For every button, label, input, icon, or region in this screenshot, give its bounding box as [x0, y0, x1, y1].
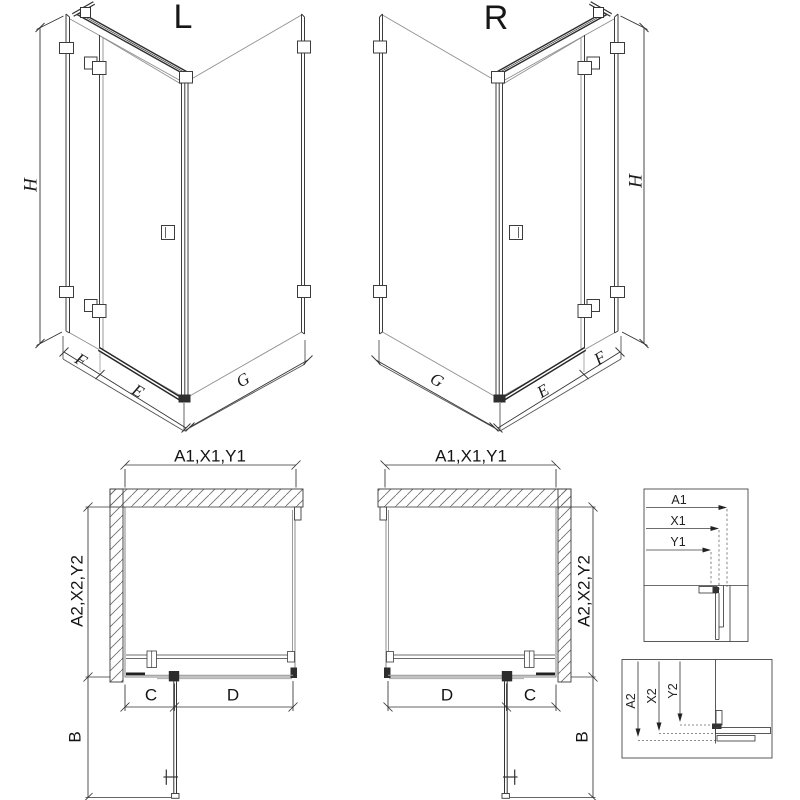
plan-right-hinge-label: C [524, 687, 536, 704]
detail-depth-row-a2: A2 [625, 693, 638, 708]
walls-plan-left [110, 489, 303, 682]
view-left-title: L [174, 0, 193, 34]
detail-box-depth [622, 660, 772, 759]
detail-depth-row-y2: Y2 [667, 683, 680, 698]
plan-right-width-label: A1,X1,Y1 [435, 448, 507, 465]
plan-left-width-label: A1,X1,Y1 [174, 448, 246, 465]
drawing-canvas [0, 0, 800, 800]
detail-width-row-x1: X1 [670, 515, 685, 528]
dim-label-height-left: H [22, 178, 41, 192]
plan-left-hinge-label: C [145, 687, 157, 704]
detail-width-row-a1: A1 [671, 494, 686, 507]
perspective-view-right [372, 3, 649, 433]
plan-left-swing-label: B [67, 731, 84, 742]
plan-right-swing-label: B [574, 731, 591, 742]
plan-left-door-label: D [227, 687, 239, 704]
plan-left-depth-label: A2,X2,Y2 [69, 555, 86, 627]
detail-depth-row-x2: X2 [646, 688, 659, 703]
view-right-title: R [484, 1, 509, 35]
plan-right-door-label: D [441, 687, 453, 704]
plan-right-depth-label: A2,X2,Y2 [576, 555, 593, 627]
walls-plan-right [378, 489, 571, 682]
detail-width-row-y1: Y1 [670, 536, 685, 549]
detail-box-width [644, 489, 748, 642]
dim-label-height-right: H [627, 174, 646, 188]
shower-enclosure-technical-drawing: L R H F E G H G E F A1,X1,Y1 A2,X2,Y2 B … [0, 0, 800, 800]
